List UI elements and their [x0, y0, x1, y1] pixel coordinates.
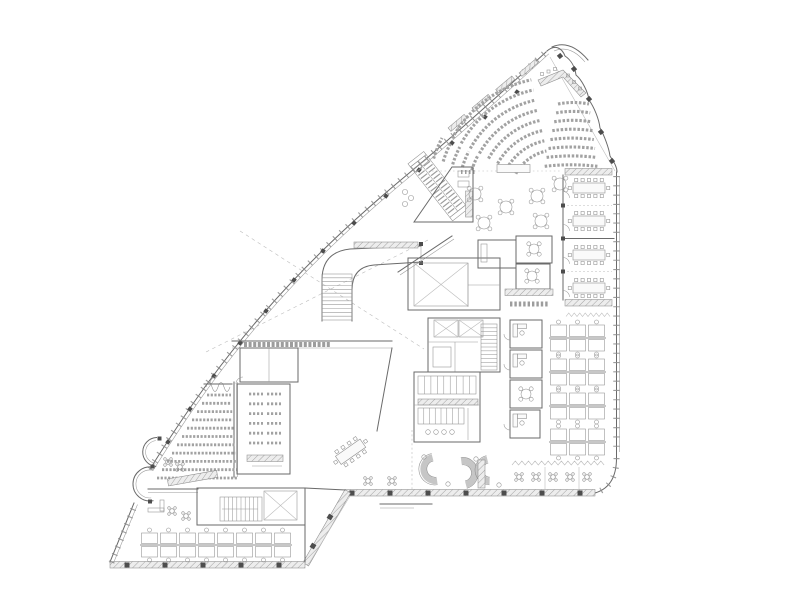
lounge-r: [478, 460, 485, 488]
conference-rooms-chair: [581, 245, 584, 248]
cafe-south-east-chair: [549, 479, 552, 482]
conference-rooms-chair: [587, 227, 590, 230]
restrooms-e: [450, 430, 455, 435]
conference-rooms-chair: [594, 278, 597, 281]
conference-rooms-chair: [575, 211, 578, 214]
open-desks-east-bench-row: [566, 313, 610, 317]
open-space-cafe-chair: [541, 200, 545, 204]
building-shell-column: [201, 563, 206, 568]
cafe-south-east-chair: [589, 479, 592, 482]
conference-rooms-a: [563, 291, 570, 298]
conference-rooms-chair: [568, 219, 571, 222]
building-shell-l: [110, 503, 134, 562]
open-space-cafe-l: [240, 231, 424, 349]
south-west-wing-chair: [168, 507, 171, 510]
building-shell-column: [239, 563, 244, 568]
south-west-wing-desk: [142, 547, 158, 558]
south-west-wing-chair: [188, 518, 191, 521]
south-west-wing-chair: [164, 458, 167, 461]
conference-rooms-chair: [607, 219, 610, 222]
service-core-chair: [537, 242, 541, 246]
meeting-rooms-mid-a: [504, 364, 510, 370]
building-shell-column: [540, 491, 545, 496]
conference-rooms-column: [561, 270, 565, 274]
open-desks-east-chair: [576, 424, 580, 428]
south-west-wing-desk: [142, 533, 158, 544]
meeting-rooms-mid-a: [504, 424, 510, 430]
escalator-stair-e: [408, 195, 413, 200]
open-desks-east-desk: [589, 444, 605, 456]
building-shell-column: [426, 491, 431, 496]
conference-rooms-chair: [587, 178, 590, 181]
open-space-cafe-chair: [510, 211, 514, 215]
cafe-south-east-bench-row: [512, 461, 604, 465]
south-west-wing-chair: [356, 454, 360, 458]
south-west-wing-chair: [333, 460, 337, 464]
auditorium-seating-seat-row: [556, 111, 590, 113]
south-west-wing-r: [197, 488, 305, 525]
cafe-south-east-chair: [515, 473, 518, 476]
service-core-r: [408, 258, 500, 310]
lounge-e: [446, 482, 450, 486]
grand-stair-p: [352, 262, 421, 321]
grand-stair-column: [419, 242, 423, 246]
conference-rooms-chair: [594, 178, 597, 181]
auditorium-seating-seat-row: [547, 156, 597, 158]
south-west-wing-chair: [370, 477, 373, 480]
south-west-wing-chair: [344, 463, 348, 467]
conference-rooms-table: [573, 216, 605, 226]
south-west-wing-chair: [350, 458, 354, 462]
service-core-r: [433, 347, 451, 367]
cafe-south-east-chair: [572, 479, 575, 482]
escalator-stair: [402, 151, 473, 222]
south-west-wing-chair: [188, 512, 191, 515]
south-west-wing-chair: [335, 449, 339, 453]
open-space-cafe-chair: [533, 225, 537, 229]
restrooms-r: [414, 372, 480, 442]
open-space-cafe-chair: [488, 227, 492, 231]
cafe-south-east-chair: [583, 473, 586, 476]
south-west-wing: [140, 433, 396, 562]
building-shell-p: [153, 54, 549, 471]
auditorium-seating-seat-row: [550, 138, 593, 140]
south-west-wing-chair: [388, 477, 391, 480]
conference-rooms-column: [561, 237, 565, 241]
south-west-wing-desk: [199, 533, 215, 544]
cafe-south-east-chair: [521, 479, 524, 482]
south-west-wing-r: [160, 500, 164, 511]
meeting-rooms-mid-desk: [518, 414, 527, 419]
service-core-round-table: [527, 271, 537, 281]
conference-rooms-chair: [600, 194, 603, 197]
south-west-wing-chair: [388, 483, 391, 486]
auditorium-seating-seat-row: [462, 152, 468, 168]
south-west-wing-chair: [186, 528, 190, 532]
open-desks-east-desk: [570, 429, 586, 441]
south-west-wing-chair: [353, 437, 357, 441]
service-core-chair: [527, 252, 531, 256]
conference-rooms-chair: [568, 286, 571, 289]
cafe-south-east-chair: [555, 473, 558, 476]
service-core: [398, 236, 553, 372]
conference-rooms: [561, 169, 614, 307]
open-space-cafe-round-table: [535, 215, 547, 227]
open-desks-east-chair: [557, 320, 561, 324]
conference-rooms-chair: [587, 211, 590, 214]
open-desks-east-desk: [551, 393, 567, 405]
conference-rooms-chair: [581, 178, 584, 181]
building-shell-a: [136, 470, 152, 498]
meeting-rooms-mid-chair: [520, 331, 524, 335]
open-desks-east-desk: [570, 340, 586, 352]
building-shell-r: [345, 490, 595, 497]
open-desks-east-desk: [551, 325, 567, 337]
conference-rooms-chair: [581, 294, 584, 297]
conference-rooms-chair: [594, 294, 597, 297]
conference-rooms-chair: [600, 294, 603, 297]
south-west-wing-desk: [218, 533, 234, 544]
open-desks-east-desk: [570, 359, 586, 371]
south-west-wing-desk: [161, 547, 177, 558]
escalator-stair-l: [418, 161, 457, 211]
open-space-cafe-chair: [498, 199, 502, 203]
conference-rooms-table: [573, 183, 605, 193]
south-west-wing-chair: [205, 528, 209, 532]
service-core-chair: [527, 242, 531, 246]
cafe-south-east-chair: [515, 479, 518, 482]
service-core-round-table: [529, 244, 539, 254]
conference-rooms-chair: [587, 294, 590, 297]
restrooms-e: [442, 430, 447, 435]
conference-rooms-chair: [575, 245, 578, 248]
service-core-chair: [535, 269, 539, 273]
south-west-wing-desk: [180, 533, 196, 544]
meeting-rooms-mid-chair: [520, 361, 524, 365]
cafe-south-east-chair: [538, 479, 541, 482]
open-desks-east-desk: [551, 359, 567, 371]
south-west-wing-chair: [364, 483, 367, 486]
auditorium-seating-seat-row: [552, 129, 592, 131]
auditorium-seating-r: [497, 165, 530, 173]
conference-rooms-chair: [575, 178, 578, 181]
lecture-hall: [148, 376, 238, 493]
conference-rooms-chair: [594, 245, 597, 248]
escalator-stair-p: [414, 167, 473, 222]
south-west-wing-chair: [170, 464, 173, 467]
open-space-cafe-round-table: [478, 217, 490, 229]
conference-rooms-chair: [575, 227, 578, 230]
conference-rooms-table: [573, 250, 605, 260]
conference-rooms-chair: [587, 261, 590, 264]
escalator-stair-r: [408, 151, 426, 166]
south-west-wing-chair: [281, 528, 285, 532]
meeting-rooms-mid-a: [504, 334, 510, 340]
conference-rooms-chair: [575, 261, 578, 264]
building-shell-column: [586, 96, 592, 102]
building-shell-l: [114, 505, 138, 564]
building-shell-p: [303, 490, 351, 567]
service-core-r: [516, 264, 550, 289]
open-desks-east-chair: [576, 456, 580, 460]
auditorium-seating-seat-row: [558, 103, 589, 105]
auditorium-seating-seat-row: [489, 121, 540, 159]
conference-rooms-chair: [587, 194, 590, 197]
conference-rooms-chair: [581, 261, 584, 264]
building-shell-p: [552, 45, 588, 60]
conference-rooms-chair: [600, 178, 603, 181]
building-shell-column: [351, 220, 357, 226]
open-desks-east-desk: [551, 374, 567, 386]
open-space-cafe-chair: [529, 200, 533, 204]
south-west-wing-chair: [243, 528, 247, 532]
lecture-hall-r: [167, 470, 217, 486]
lounge-e: [474, 457, 478, 461]
open-desks-east-desk: [589, 359, 605, 371]
south-west-wing-chair: [182, 512, 185, 515]
conference-rooms-chair: [581, 278, 584, 281]
open-space-cafe-chair: [510, 199, 514, 203]
service-core-chair: [537, 252, 541, 256]
building-shell-r: [110, 562, 305, 569]
conference-rooms-chair: [575, 194, 578, 197]
auditorium-seating-seat-row: [498, 131, 542, 164]
open-space-cafe-round-table: [500, 201, 512, 213]
conference-rooms-chair: [600, 211, 603, 214]
conference-rooms-chair: [587, 278, 590, 281]
escalator-stair-e: [402, 189, 407, 194]
open-desks-east: [549, 313, 610, 460]
building-shell-l: [112, 504, 136, 563]
south-west-wing-chair: [164, 464, 167, 467]
cafe-south-east-chair: [538, 473, 541, 476]
south-west-wing-chair: [364, 477, 367, 480]
building-shell-column: [125, 563, 130, 568]
meeting-rooms-mid-chair: [529, 397, 533, 401]
conference-rooms-chair: [594, 227, 597, 230]
drawing-canvas: [0, 0, 800, 600]
south-west-wing-desk: [218, 547, 234, 558]
south-west-wing-chair: [182, 518, 185, 521]
south-west-wing-chair: [170, 458, 173, 461]
auditorium-seating-seat-row: [453, 147, 460, 164]
open-desks-east-desk: [589, 429, 605, 441]
meeting-rooms-mid-chair: [519, 397, 523, 401]
cafe-south-east-chair: [532, 473, 535, 476]
building-shell-column: [163, 563, 168, 568]
conference-rooms-r: [565, 169, 612, 176]
conference-rooms-chair: [581, 194, 584, 197]
open-space-cafe-chair: [479, 186, 483, 190]
conference-rooms-chair: [568, 186, 571, 189]
lounge: [412, 430, 501, 496]
south-west-wing-r: [148, 508, 164, 512]
west-rooms-l: [377, 348, 392, 431]
meeting-rooms-mid-desk: [518, 324, 527, 329]
south-west-wing-l: [310, 496, 350, 562]
conference-rooms-chair: [607, 253, 610, 256]
lecture-hall-a: [210, 376, 218, 384]
open-desks-east-desk: [570, 393, 586, 405]
meeting-rooms-mid-chair: [529, 387, 533, 391]
service-core-r: [481, 244, 487, 262]
open-desks-east-chair: [595, 420, 599, 424]
open-space-cafe-round-table: [531, 190, 543, 202]
south-west-wing-chair: [363, 439, 367, 443]
meeting-rooms-mid-chair: [520, 421, 524, 425]
cafe-south-east-chair: [566, 473, 569, 476]
restrooms-r: [418, 399, 478, 405]
conference-rooms-table: [573, 283, 605, 293]
training-room-r: [247, 455, 283, 462]
conference-rooms-chair: [587, 245, 590, 248]
open-space-cafe-chair: [476, 215, 480, 219]
open-space-cafe-chair: [488, 215, 492, 219]
scale-bar: [380, 504, 432, 508]
conference-rooms-a: [563, 225, 570, 232]
conference-rooms-chair: [581, 227, 584, 230]
building-shell-column: [578, 491, 583, 496]
escalator-stair-e: [402, 201, 407, 206]
open-desks-east-desk: [570, 408, 586, 420]
south-west-wing-chair: [224, 528, 228, 532]
auditorium-seating-seat-row: [461, 90, 533, 143]
open-desks-east-chair: [576, 320, 580, 324]
open-space-cafe-chair: [552, 188, 556, 192]
south-west-wing-desk: [256, 533, 272, 544]
conference-rooms-chair: [607, 186, 610, 189]
south-west-wing-chair: [167, 528, 171, 532]
restrooms-e: [426, 430, 431, 435]
open-desks-east-desk: [551, 429, 567, 441]
conference-rooms-chair: [607, 286, 610, 289]
south-west-wing-group: [329, 433, 372, 471]
open-desks-east-chair: [576, 420, 580, 424]
floor-plan-drawing: [0, 0, 800, 600]
conference-rooms-chair: [575, 294, 578, 297]
building-shell-p: [547, 47, 617, 172]
conference-rooms-a: [563, 192, 570, 199]
south-west-wing-chair: [174, 513, 177, 516]
open-desks-east-desk: [589, 374, 605, 386]
cafe-south-east-chair: [589, 473, 592, 476]
south-west-wing-chair: [362, 450, 366, 454]
open-desks-east-desk: [589, 325, 605, 337]
conference-rooms-chair: [594, 261, 597, 264]
building-plan: [110, 45, 620, 568]
open-space-cafe-chair: [545, 225, 549, 229]
lounge-e: [497, 483, 501, 487]
training-room: [236, 377, 290, 474]
auditorium-seating-seat-row: [554, 120, 591, 122]
south-west-wing-chair: [347, 441, 351, 445]
meeting-rooms-mid-desk: [518, 354, 527, 359]
open-space-cafe-chair: [479, 198, 483, 202]
open-desks-east-chair: [595, 424, 599, 428]
south-west-wing-desk: [275, 547, 291, 558]
cafe-south-east-chair: [532, 479, 535, 482]
grand-stair-p: [322, 246, 421, 321]
meeting-rooms-mid-desk: [513, 324, 518, 337]
conference-rooms-chair: [600, 227, 603, 230]
cafe-south-east-chair: [566, 479, 569, 482]
meeting-rooms-mid-round-table: [521, 389, 531, 399]
south-west-wing-l: [305, 488, 345, 490]
escalator-stair-r: [458, 181, 469, 187]
building-shell-column: [277, 563, 282, 568]
open-desks-east-desk: [551, 340, 567, 352]
conference-rooms-chair: [594, 211, 597, 214]
conference-rooms-r: [565, 300, 612, 307]
conference-rooms-chair: [600, 278, 603, 281]
auditorium-seating-seat-row: [549, 147, 596, 149]
south-west-wing-chair: [174, 507, 177, 510]
building-shell-column: [502, 491, 507, 496]
open-desks-east-desk: [589, 393, 605, 405]
open-desks-east-desk: [551, 444, 567, 456]
south-west-wing-desk: [237, 533, 253, 544]
south-west-wing-desk: [161, 533, 177, 544]
service-core-r: [516, 236, 552, 263]
cafe-south-east-chair: [521, 473, 524, 476]
open-desks-east-desk: [589, 408, 605, 420]
south-west-wing-chair: [370, 483, 373, 486]
building-shell-column: [151, 465, 155, 469]
conference-rooms-chair: [600, 245, 603, 248]
building-shell-column: [571, 66, 577, 72]
south-west-wing-chair: [182, 463, 185, 466]
south-west-wing-desk: [275, 533, 291, 544]
conference-rooms-chair: [600, 261, 603, 264]
open-space-cafe-chair: [545, 213, 549, 217]
open-desks-east-desk: [570, 444, 586, 456]
meeting-rooms-mid-r: [510, 380, 542, 408]
open-desks-east-chair: [595, 320, 599, 324]
open-desks-east-desk: [551, 408, 567, 420]
conference-rooms-chair: [568, 253, 571, 256]
building-shell-column: [557, 53, 563, 59]
south-west-wing-chair: [394, 483, 397, 486]
restrooms: [414, 372, 480, 442]
cafe-south-east-chair: [555, 479, 558, 482]
open-space-cafe-chair: [476, 227, 480, 231]
open-desks-east-desk: [589, 340, 605, 352]
south-west-wing-chair: [394, 477, 397, 480]
south-west-wing-desk: [237, 547, 253, 558]
open-desks-east-chair: [557, 456, 561, 460]
cafe-south-east-chair: [549, 473, 552, 476]
south-west-wing-chair: [148, 528, 152, 532]
meeting-rooms-mid: [504, 320, 542, 438]
conference-rooms-a: [563, 258, 570, 265]
auditorium-seating-seat-row: [545, 165, 598, 167]
escalator-stair-r: [458, 171, 469, 177]
building-shell-column: [148, 500, 152, 504]
open-space-cafe-round-table: [554, 178, 566, 190]
meeting-rooms-mid-desk: [513, 414, 518, 427]
south-west-wing-desk: [256, 547, 272, 558]
open-desks-east-chair: [557, 424, 561, 428]
conference-rooms-chair: [581, 211, 584, 214]
restrooms-e: [434, 430, 439, 435]
open-space-cafe-chair: [498, 211, 502, 215]
service-core-chair: [525, 279, 529, 283]
open-space-cafe-chair: [533, 213, 537, 217]
service-core-r: [505, 289, 553, 296]
restrooms-stair: [418, 376, 476, 394]
open-space-cafe-chair: [552, 176, 556, 180]
south-west-wing-desk: [199, 547, 215, 558]
